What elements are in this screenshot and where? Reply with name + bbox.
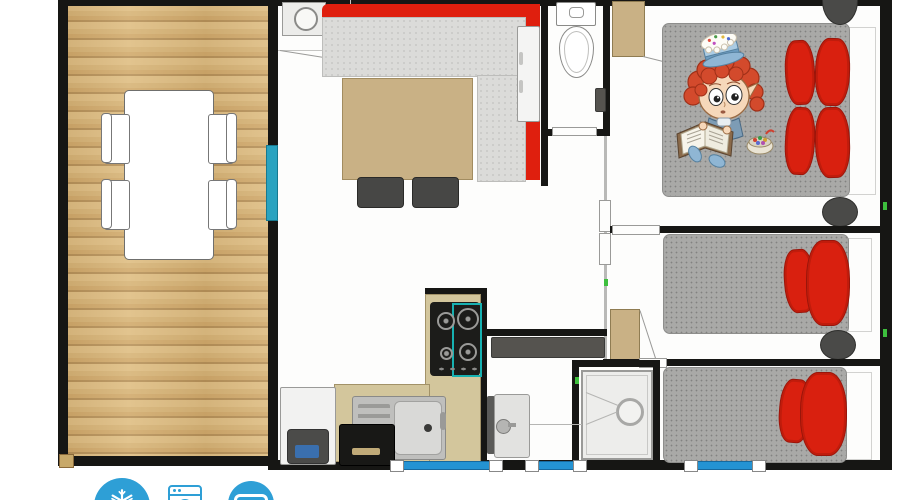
coffee-table (342, 78, 473, 180)
oven (339, 424, 395, 466)
washroom-wall (487, 329, 607, 336)
window-cap (390, 460, 404, 472)
switch-mark (883, 202, 887, 210)
bedroom-door (612, 225, 660, 235)
window (690, 461, 760, 470)
bed-pillow (806, 240, 850, 326)
hob-burner (440, 347, 453, 360)
wc-wall-left (541, 0, 548, 186)
shower-drain (616, 398, 644, 426)
bed-pillow (814, 37, 851, 106)
dining-chair (208, 180, 234, 230)
sink-faucet (440, 412, 446, 430)
window-cap (489, 460, 503, 472)
stool (357, 177, 404, 208)
window-cap (525, 460, 539, 472)
bed-frame (846, 372, 872, 460)
hob-burner (457, 308, 479, 330)
window-cap (573, 460, 587, 472)
wardrobe (610, 309, 640, 364)
toilet-paper-holder (595, 88, 606, 112)
switch-mark (575, 377, 579, 384)
washing-machine-drum (294, 7, 318, 31)
corridor-door (599, 233, 611, 265)
snowflake-icon (109, 488, 135, 500)
switch-mark (883, 329, 887, 337)
building-wall-left (268, 0, 278, 460)
wc-wall-right (603, 0, 610, 136)
dishwasher-icon-dot (178, 489, 181, 492)
window-cap (752, 460, 766, 472)
shower-wall-left (572, 360, 579, 460)
terrace-corner-post (59, 454, 74, 468)
oven-handle (352, 448, 380, 455)
dining-chair (104, 114, 130, 164)
hob-burner (437, 312, 455, 330)
dining-chair (104, 180, 130, 230)
washroom-shelf (491, 337, 605, 358)
bed-frame (848, 27, 876, 195)
hob-knobs (435, 366, 479, 372)
sofa-seat-top (322, 17, 526, 77)
shower-door-line (530, 424, 582, 425)
sink-drain (424, 424, 432, 432)
terrace-wall-bottom (58, 456, 280, 466)
dining-table (124, 90, 214, 260)
bed-pillow (814, 106, 851, 178)
sofa-back-top (322, 4, 540, 17)
side-panel-handle (519, 80, 523, 93)
hob-burner (459, 343, 477, 361)
window-cap (684, 460, 698, 472)
washbasin-faucet-stem (508, 423, 516, 427)
shower-wall-right (653, 360, 660, 460)
nightstand (822, 197, 858, 227)
nightstand (820, 330, 856, 360)
tv-icon (228, 481, 274, 500)
terrace-wall-top (58, 0, 270, 6)
wardrobe (612, 1, 645, 57)
sliding-bay-door (266, 145, 278, 221)
mascot-illustration (664, 34, 784, 170)
bed-pillow (800, 372, 847, 456)
bed-frame (848, 238, 872, 332)
toilet-flush-button (569, 7, 584, 18)
air-conditioning-icon (94, 478, 150, 500)
wc-door (552, 127, 597, 136)
switch-mark (604, 279, 608, 286)
stool (412, 177, 459, 208)
side-panel-handle (519, 52, 523, 65)
sink-basin (394, 401, 442, 455)
fridge-accent (295, 445, 319, 458)
window (397, 461, 497, 470)
dishwasher-icon-dot (173, 489, 176, 492)
terrace-wall-left (58, 0, 68, 466)
shower-wall-top (572, 360, 660, 367)
dishwasher-icon (168, 485, 202, 500)
dining-chair (208, 114, 234, 164)
sofa-side-panel (517, 26, 540, 122)
building-wall-right (880, 0, 892, 470)
tv-icon-screen (234, 494, 268, 500)
floorplan-canvas: ❄ (0, 0, 900, 500)
